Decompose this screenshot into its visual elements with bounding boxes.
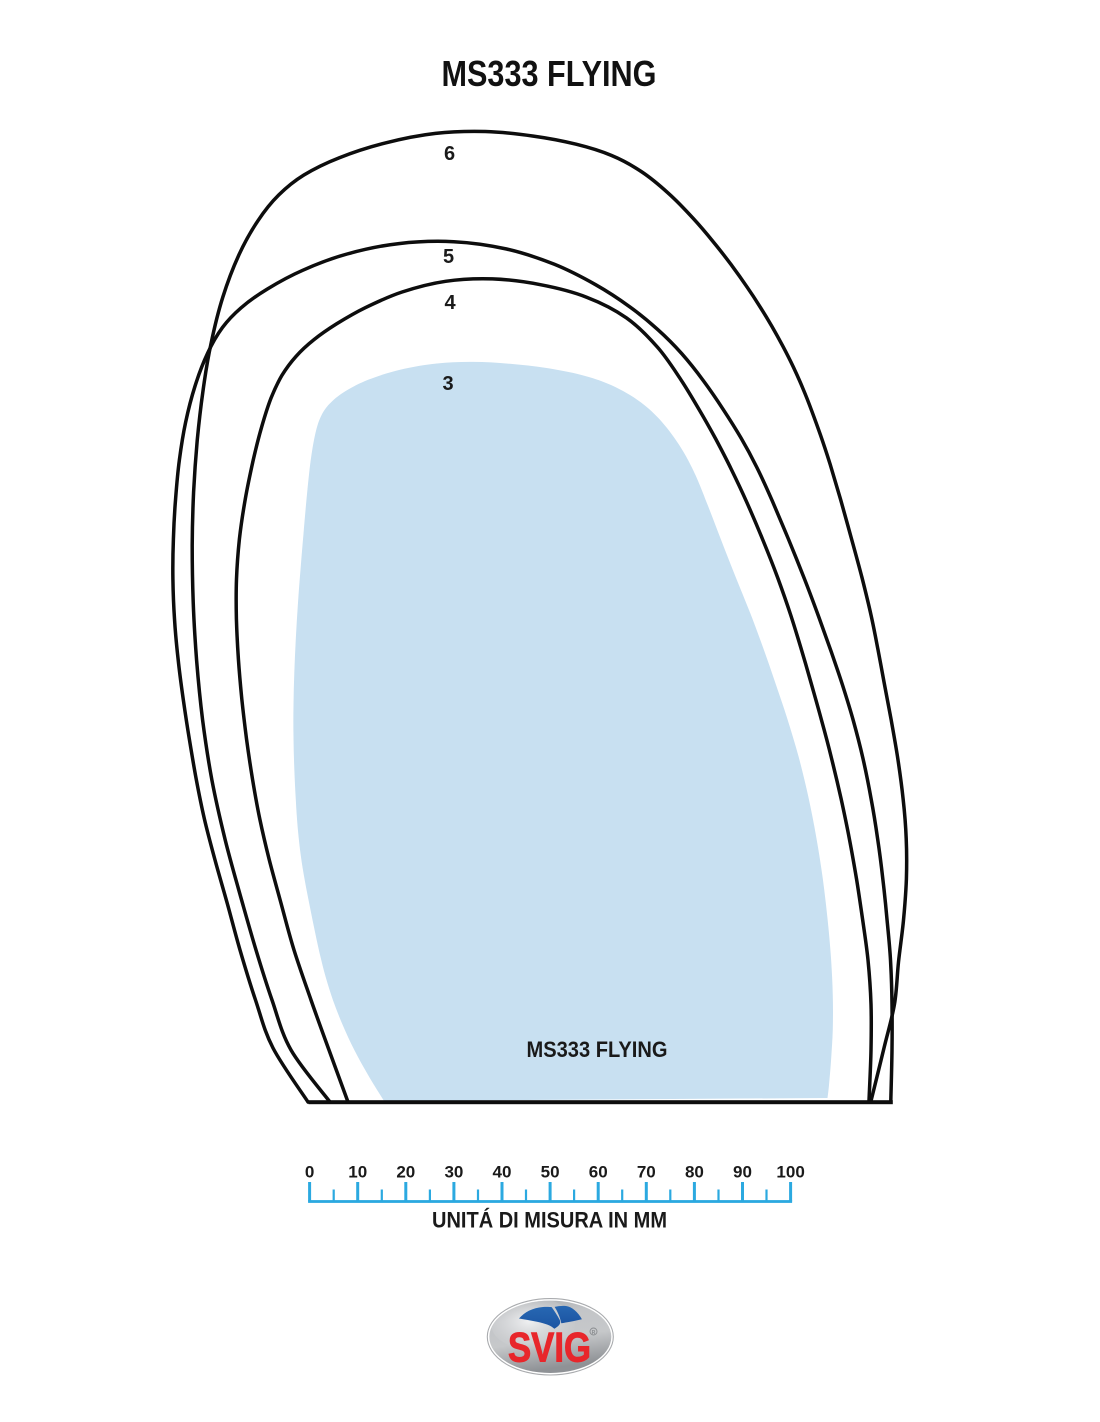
svg-text:30: 30: [444, 1163, 463, 1182]
svg-text:SVIG: SVIG: [508, 1324, 591, 1371]
svg-text:40: 40: [493, 1163, 512, 1182]
svg-text:R: R: [592, 1330, 596, 1336]
svg-text:90: 90: [733, 1163, 752, 1182]
svg-text:20: 20: [396, 1163, 415, 1182]
svg-text:UNITÁ DI MISURA IN MM: UNITÁ DI MISURA IN MM: [432, 1208, 667, 1233]
svg-text:4: 4: [444, 292, 456, 314]
svg-text:MS333 FLYING: MS333 FLYING: [442, 53, 657, 94]
svg-text:3: 3: [442, 373, 453, 395]
svg-text:MS333 FLYING: MS333 FLYING: [527, 1037, 668, 1062]
svg-text:50: 50: [541, 1163, 560, 1182]
svg-text:100: 100: [776, 1163, 804, 1182]
svg-text:60: 60: [589, 1163, 608, 1182]
svg-text:6: 6: [444, 143, 455, 165]
svg-text:10: 10: [348, 1163, 367, 1182]
svg-text:5: 5: [443, 246, 454, 268]
svg-text:80: 80: [685, 1163, 704, 1182]
svg-text:0: 0: [305, 1163, 314, 1182]
svg-text:70: 70: [637, 1163, 656, 1182]
